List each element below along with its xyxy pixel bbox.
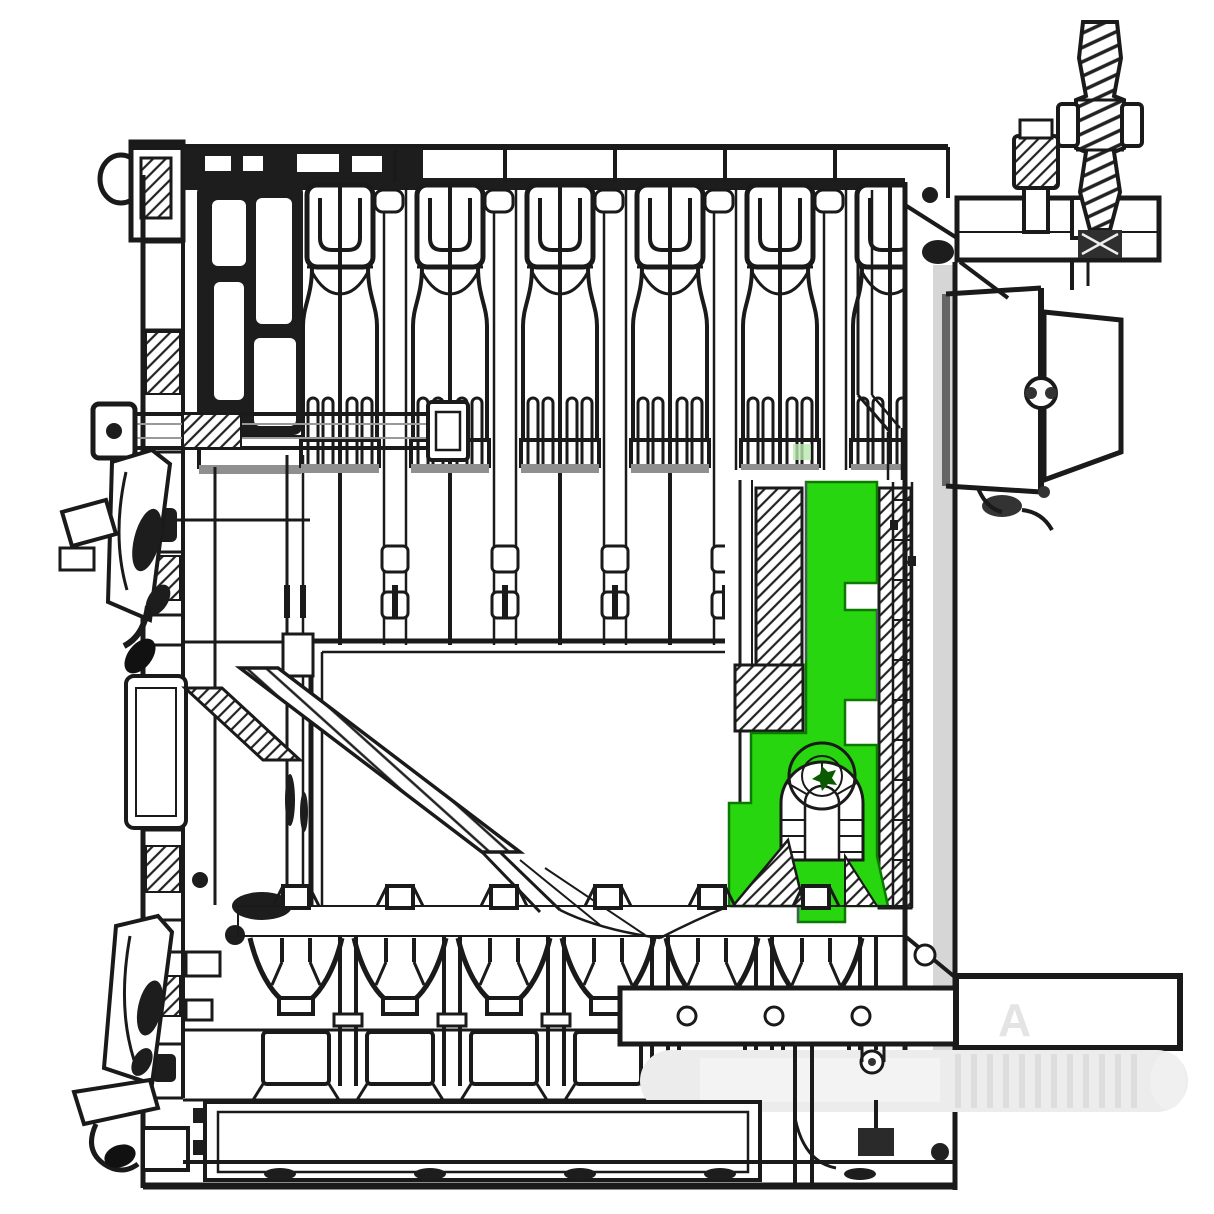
threaded-tension-rod xyxy=(1076,22,1124,230)
side-extension-bar xyxy=(956,976,1180,1048)
fin-unit xyxy=(631,150,738,645)
right-flue-outlet xyxy=(946,22,1159,530)
small-fitting xyxy=(1014,136,1058,188)
tie-bar-hole xyxy=(678,1007,696,1025)
lower-section-unit xyxy=(354,886,466,1100)
flange-plate xyxy=(957,198,1159,260)
diagram-canvas: A xyxy=(0,0,1214,1214)
bottom-casing xyxy=(143,1102,955,1186)
boiler-cross-section-diagram: A xyxy=(0,0,1214,1214)
tie-bar-hole xyxy=(765,1007,783,1025)
fin-unit xyxy=(301,150,408,645)
tie-bar-hole xyxy=(852,1007,870,1025)
combustion-chamber xyxy=(283,634,728,906)
fin-unit xyxy=(521,150,628,645)
ash-door xyxy=(205,1102,760,1180)
green-blip xyxy=(793,444,811,460)
ghost-watermark-letter: A xyxy=(998,994,1031,1046)
lower-section-unit xyxy=(458,886,570,1100)
tie-bar-with-holes xyxy=(620,988,956,1044)
fin-unit xyxy=(411,150,518,645)
